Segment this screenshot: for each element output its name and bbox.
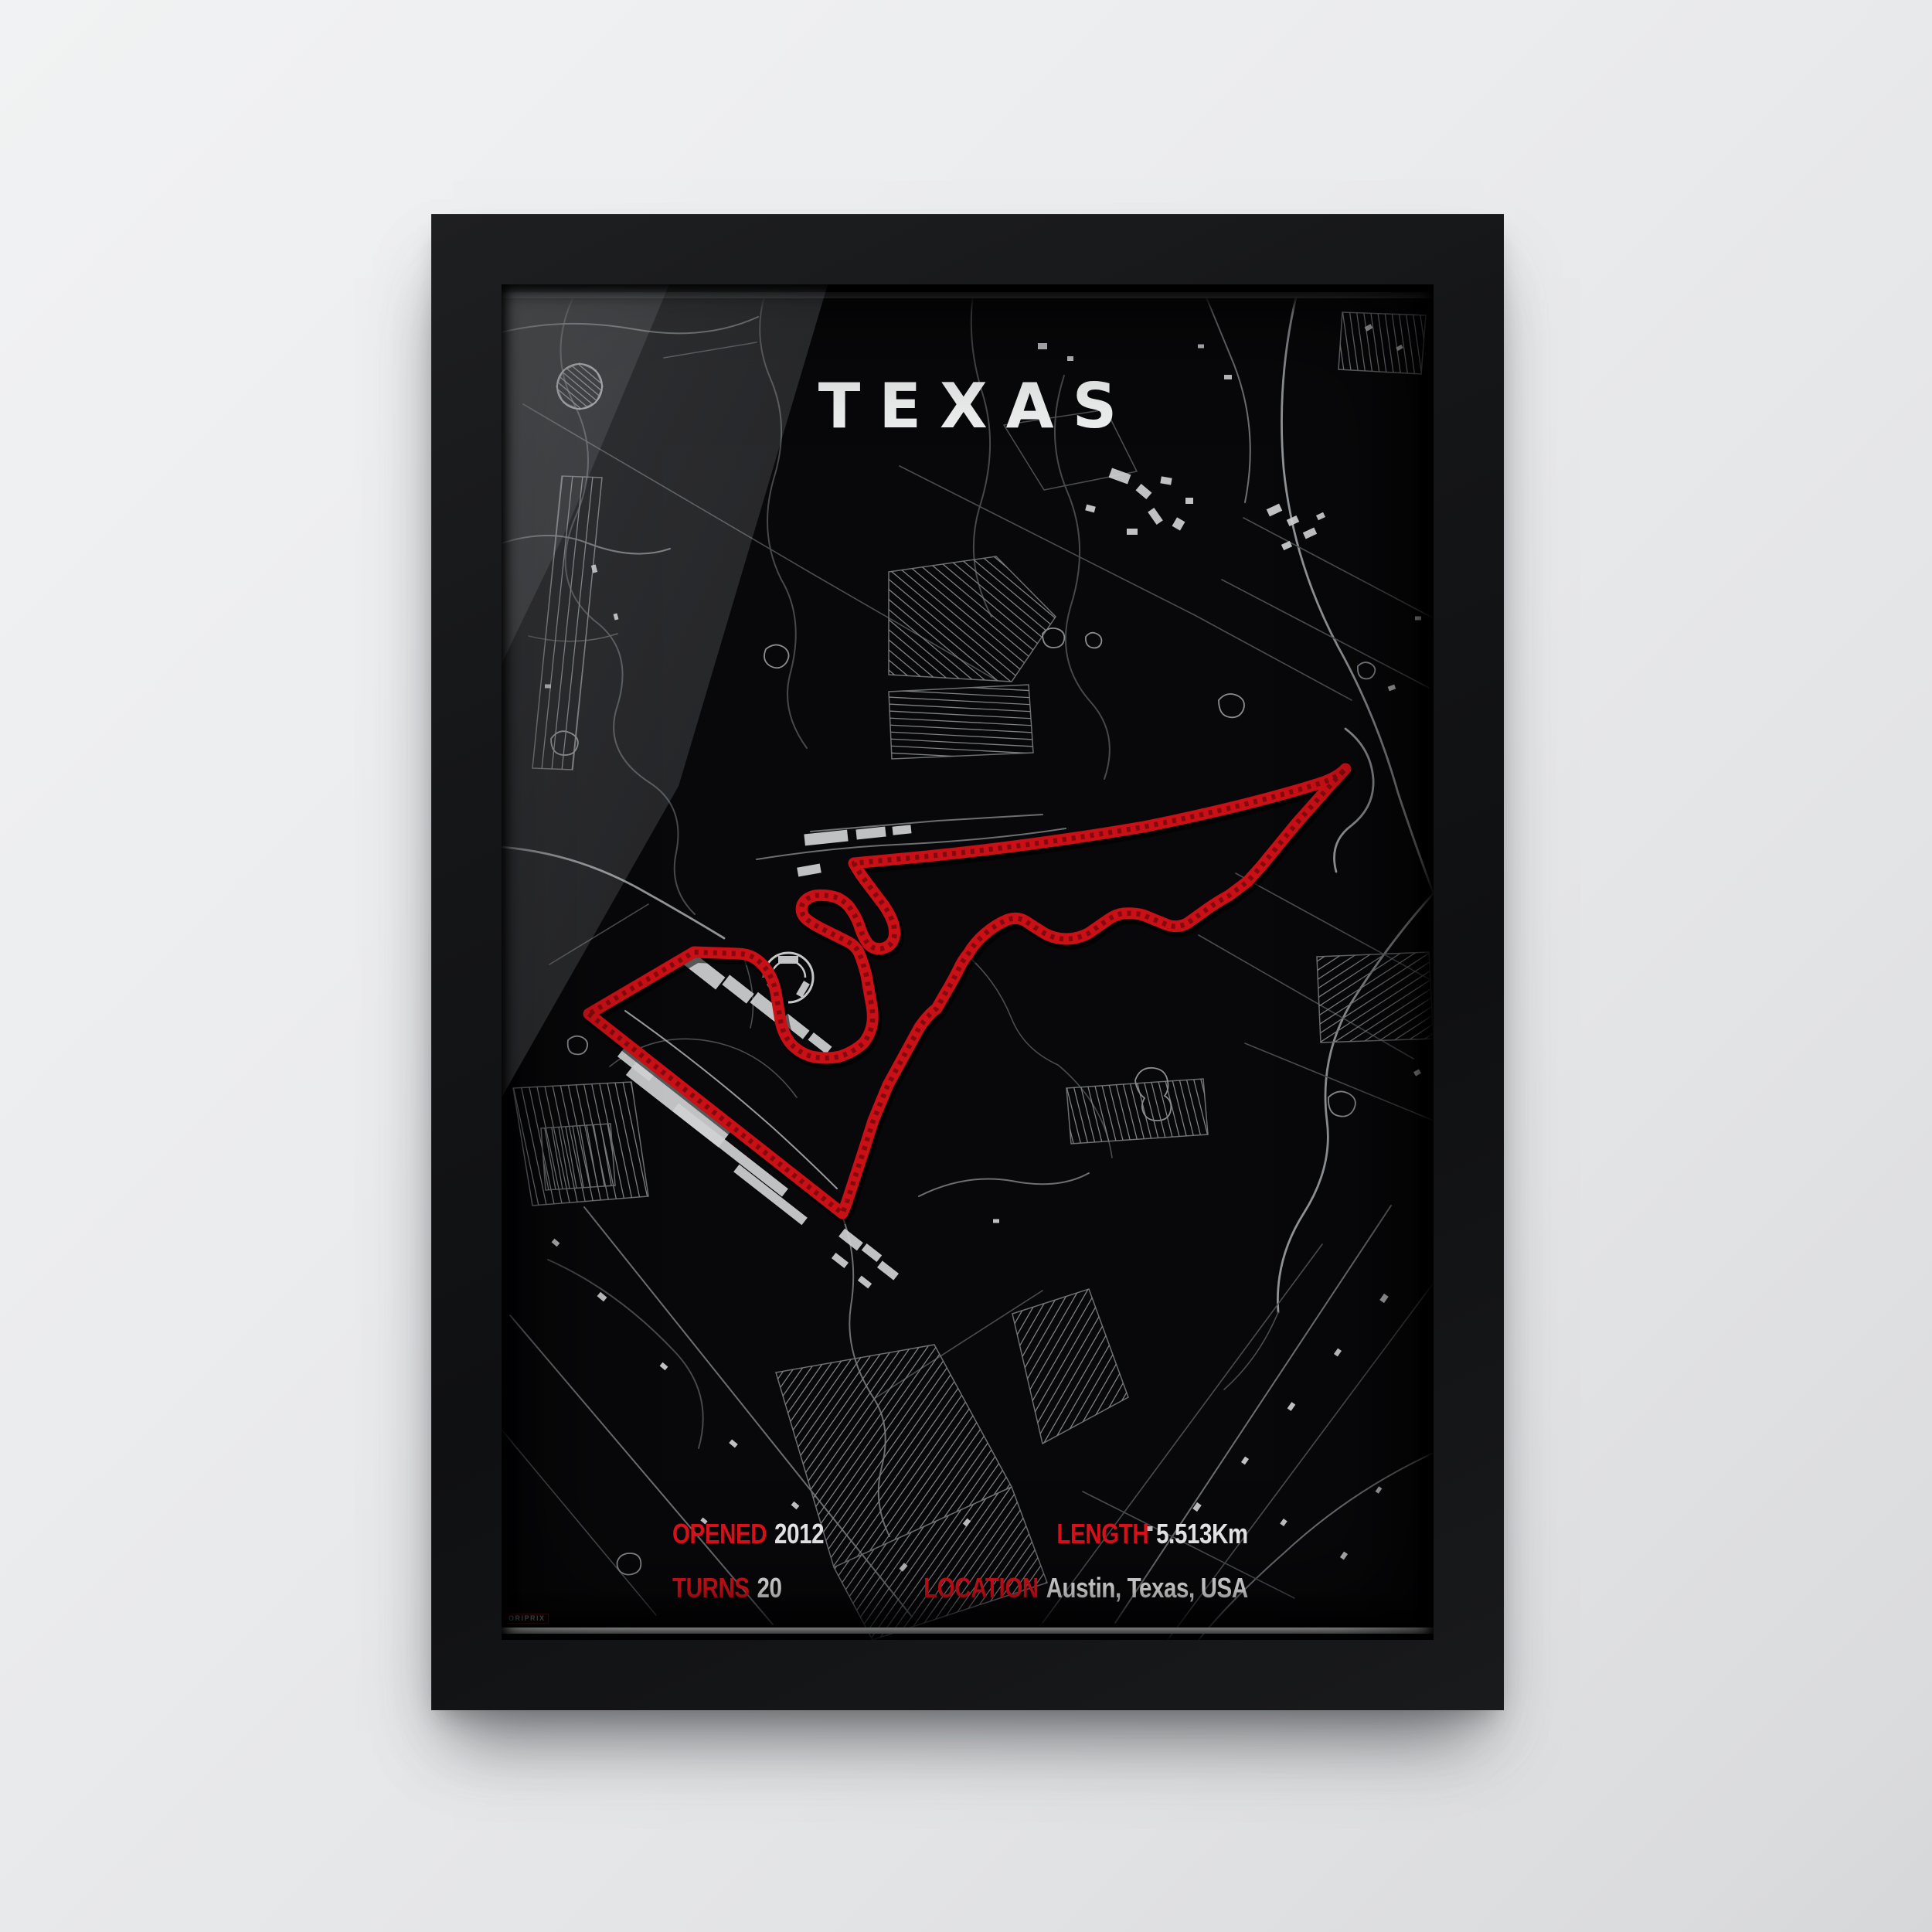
bottom-light-strip <box>502 1628 1434 1634</box>
picture-frame: TEXAS OPENED2012 TURNS20 LENGTH5.513Km L… <box>431 214 1504 1710</box>
race-track <box>589 769 1348 1217</box>
stat-row-opened: OPENED2012 <box>672 1519 824 1548</box>
top-frame-lip <box>502 292 1434 298</box>
stat-row-length: LENGTH5.513Km <box>923 1519 1248 1548</box>
stat-label: OPENED <box>672 1518 767 1549</box>
frame-opening: TEXAS OPENED2012 TURNS20 LENGTH5.513Km L… <box>502 284 1434 1640</box>
top-shade <box>502 284 1434 312</box>
track-texture <box>589 769 1345 1213</box>
stat-value: 5.513Km <box>1156 1518 1248 1549</box>
pit-lane <box>625 1011 837 1189</box>
bottom-shade <box>502 1589 1434 1628</box>
map-svg <box>502 284 1434 1640</box>
wall: TEXAS OPENED2012 TURNS20 LENGTH5.513Km L… <box>0 0 1932 1932</box>
track-outline <box>589 769 1345 1213</box>
poster: TEXAS OPENED2012 TURNS20 LENGTH5.513Km L… <box>502 284 1434 1640</box>
map-plaza <box>557 364 813 1002</box>
stat-value: 2012 <box>774 1518 824 1549</box>
stat-label: LENGTH <box>1057 1518 1149 1549</box>
poster-title: TEXAS <box>502 376 1434 437</box>
